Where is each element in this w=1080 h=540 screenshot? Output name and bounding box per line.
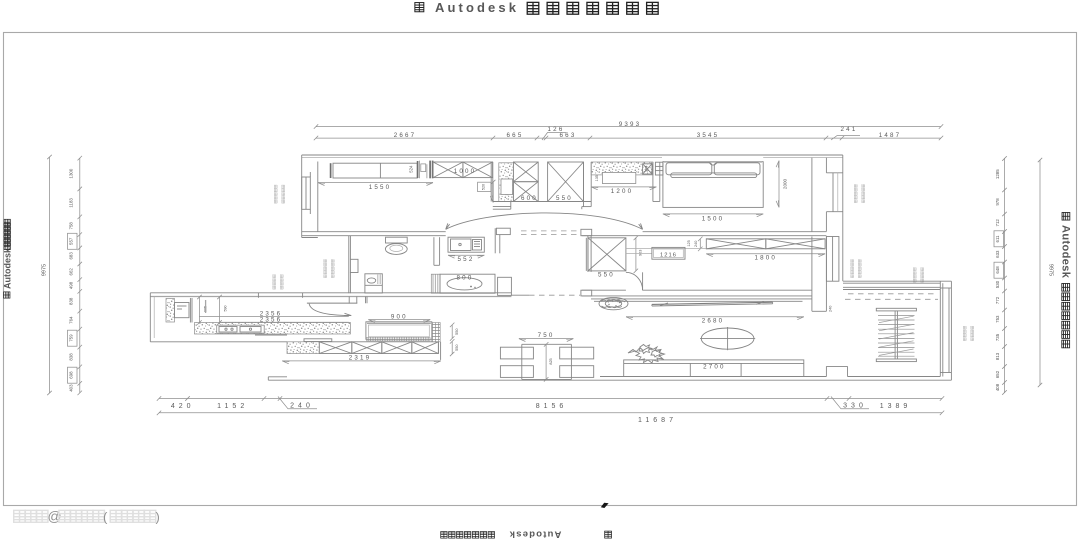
svg-text:530: 530: [995, 280, 1000, 288]
svg-text:2680: 2680: [702, 317, 725, 324]
svg-text:9393: 9393: [619, 121, 642, 128]
svg-text:420: 420: [171, 403, 195, 410]
svg-text:825: 825: [549, 358, 553, 364]
svg-text:135: 135: [595, 175, 599, 181]
svg-text:300: 300: [645, 166, 649, 172]
svg-text:1200: 1200: [611, 188, 634, 195]
svg-text:590: 590: [224, 306, 228, 312]
svg-text:11687: 11687: [638, 417, 677, 424]
svg-text:1300: 1300: [69, 168, 74, 178]
svg-text:758: 758: [69, 222, 74, 230]
svg-text:3545: 3545: [697, 132, 720, 139]
svg-text:698: 698: [69, 371, 74, 379]
svg-text:126: 126: [548, 126, 565, 133]
svg-text:1183: 1183: [69, 198, 74, 208]
svg-text:1800: 1800: [755, 255, 778, 262]
svg-text:663: 663: [560, 132, 577, 139]
svg-text:2000: 2000: [783, 178, 788, 189]
svg-text:813: 813: [995, 352, 1000, 360]
svg-text:550: 550: [598, 272, 615, 279]
svg-text:712: 712: [995, 219, 1000, 227]
svg-text:1285: 1285: [995, 169, 1000, 179]
svg-text:330: 330: [843, 402, 867, 409]
svg-text:1550: 1550: [369, 184, 392, 191]
svg-text:241: 241: [841, 126, 858, 133]
svg-text:838: 838: [69, 297, 74, 305]
svg-text:520: 520: [482, 184, 486, 190]
svg-text:524: 524: [408, 165, 413, 173]
svg-text:Autodesk: Autodesk: [2, 247, 12, 289]
svg-text:611: 611: [995, 235, 1000, 243]
svg-text:408: 408: [995, 383, 1000, 391]
svg-text:633: 633: [995, 250, 1000, 258]
svg-text:498: 498: [69, 281, 74, 289]
svg-text:(: (: [103, 510, 108, 525]
svg-text:750: 750: [538, 332, 555, 339]
svg-text:1389: 1389: [880, 403, 912, 410]
svg-text:903: 903: [639, 250, 643, 256]
svg-text:1152: 1152: [217, 403, 248, 410]
svg-text:800: 800: [457, 274, 474, 281]
svg-text:240: 240: [290, 402, 314, 409]
svg-text:9975: 9975: [1048, 264, 1054, 276]
svg-text:753: 753: [995, 315, 1000, 323]
svg-text:403: 403: [69, 384, 74, 392]
svg-text:9975: 9975: [42, 264, 48, 276]
svg-text:8156: 8156: [536, 403, 568, 410]
svg-text:662: 662: [69, 268, 74, 276]
svg-text:735: 735: [995, 333, 1000, 341]
svg-text:125: 125: [687, 240, 691, 246]
svg-text:240: 240: [829, 306, 833, 312]
svg-text:): ): [156, 510, 160, 525]
svg-text:838: 838: [69, 353, 74, 361]
svg-text:Autodesk: Autodesk: [435, 0, 519, 15]
svg-text:550: 550: [455, 345, 459, 351]
svg-text:772: 772: [995, 296, 1000, 304]
svg-text:683: 683: [69, 252, 74, 260]
svg-text:2700: 2700: [703, 364, 726, 371]
svg-text:2667: 2667: [394, 132, 417, 139]
svg-text:1500: 1500: [702, 215, 725, 222]
svg-text:1487: 1487: [879, 132, 902, 139]
svg-text:Autodesk: Autodesk: [509, 528, 562, 539]
svg-text:Autodesk: Autodesk: [1059, 225, 1071, 279]
svg-text:764: 764: [69, 316, 74, 324]
svg-text:900: 900: [391, 313, 408, 320]
svg-text:648: 648: [995, 266, 1000, 274]
svg-text:1216: 1216: [660, 252, 677, 258]
svg-text:552: 552: [458, 256, 475, 263]
svg-text:550: 550: [455, 329, 459, 335]
svg-text:978: 978: [995, 198, 1000, 206]
svg-text:1000: 1000: [454, 168, 477, 175]
svg-text:665: 665: [507, 132, 524, 139]
svg-text:652: 652: [995, 370, 1000, 378]
svg-text:759: 759: [69, 334, 74, 342]
svg-text:557: 557: [69, 237, 74, 245]
svg-text:240: 240: [694, 241, 698, 247]
svg-text:2319: 2319: [349, 354, 372, 361]
